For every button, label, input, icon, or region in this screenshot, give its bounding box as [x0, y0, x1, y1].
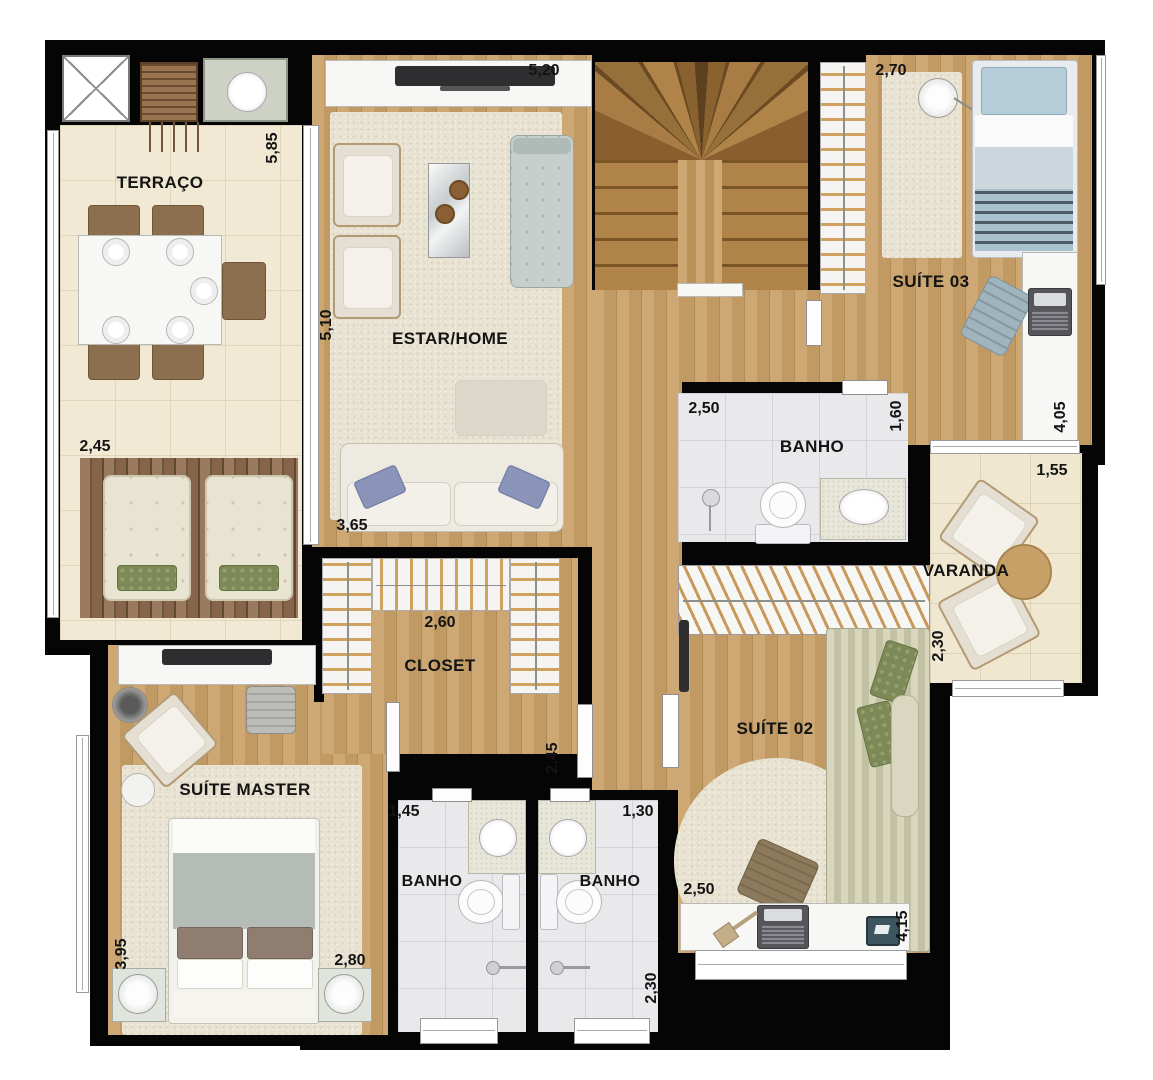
dim-suite02-250: 2,50	[683, 881, 714, 899]
single-bed	[972, 60, 1078, 258]
suite02-door	[662, 694, 679, 768]
elevator-shaft	[62, 55, 130, 122]
terrace-left-window	[47, 130, 59, 618]
room-label-banho-social: BANHO	[780, 437, 844, 457]
dim-closet-245: 2,45	[544, 742, 562, 773]
laptop	[1028, 288, 1072, 336]
suite02-laptop	[757, 905, 809, 949]
banho-master-counter	[468, 800, 526, 874]
plate-setting	[166, 316, 194, 344]
closet-door	[577, 704, 593, 778]
dim-suite03-270: 2,70	[875, 62, 906, 80]
varanda-bottom-window	[952, 680, 1064, 697]
floor-lamp	[918, 78, 958, 118]
staircase	[595, 62, 808, 290]
floor-plan: TERRAÇO 5,85 2,45 ESTAR/HOME 5,20 5,10 3…	[0, 0, 1153, 1080]
room-label-estar: ESTAR/HOME	[392, 329, 508, 349]
dim-closet-260: 2,60	[424, 614, 455, 632]
suite02-wall-tv	[679, 620, 689, 692]
room-label-banho-suite02: BANHO	[580, 873, 641, 891]
room-label-varanda: VARANDA	[923, 561, 1010, 581]
banho-master-window	[420, 1018, 498, 1044]
chaise-daybed	[510, 135, 574, 288]
bookshelf	[820, 62, 866, 294]
grill-skewers	[141, 122, 199, 152]
shower-head	[702, 489, 720, 507]
room-label-banho-master: BANHO	[402, 873, 463, 891]
plate-setting	[102, 316, 130, 344]
room-label-suite02: SUÍTE 02	[737, 719, 814, 739]
room-label-suite03: SUÍTE 03	[893, 272, 970, 292]
dim-terraco-585: 5,85	[264, 132, 282, 163]
master-side-table	[121, 773, 155, 807]
terrace-estar-glass-door	[303, 125, 319, 545]
hall-suite03-door	[806, 300, 822, 346]
stair-treads-right	[722, 160, 808, 290]
nightstand	[318, 968, 372, 1022]
master-door	[386, 702, 400, 772]
nightstand	[112, 968, 166, 1022]
stair-landing-strip	[678, 160, 722, 290]
room-label-terraco: TERRAÇO	[117, 173, 204, 193]
banho-social-counter	[820, 478, 906, 540]
plate-setting	[166, 238, 194, 266]
closet-top-shelf	[372, 558, 510, 611]
banho-social-door	[842, 380, 888, 395]
armchair	[333, 235, 401, 319]
banho-master-door	[432, 788, 472, 802]
dim-master-280: 2,80	[334, 952, 365, 970]
room-label-suite-master: SUÍTE MASTER	[179, 780, 310, 800]
dim-banho-social-160: 1,60	[888, 400, 906, 431]
terrace-sink-counter	[203, 58, 288, 122]
dining-chair	[222, 262, 266, 320]
dim-banho-social-250: 2,50	[688, 400, 719, 418]
master-tv	[162, 649, 272, 665]
suite02-bottom-window	[695, 950, 907, 980]
tv-stand	[440, 86, 510, 91]
plate-setting	[102, 238, 130, 266]
toilet-tank	[502, 874, 520, 930]
stair-base-step	[677, 283, 743, 297]
sun-lounger	[205, 475, 293, 601]
dim-banho-suite02-230: 2,30	[643, 972, 661, 1003]
banho-suite02-window	[574, 1018, 650, 1044]
dim-estar-365: 3,65	[336, 517, 367, 535]
room-label-closet: CLOSET	[404, 656, 475, 676]
sun-lounger	[103, 475, 191, 601]
armchair	[333, 143, 401, 227]
dim-banho-suite02-130: 1,30	[622, 803, 653, 821]
barbecue-grill-icon	[140, 62, 198, 122]
dim-master-395: 3,95	[113, 938, 131, 969]
master-desk-chair	[246, 686, 296, 734]
banho-suite02-counter	[538, 800, 596, 874]
dim-estar-510: 5,10	[318, 309, 336, 340]
double-bed	[168, 818, 320, 1024]
shower-knob	[486, 961, 500, 975]
dim-suite02-415: 4,15	[894, 910, 912, 941]
dim-banho-master-145: 1,45	[388, 803, 419, 821]
ottoman	[455, 380, 547, 436]
sofa	[340, 443, 564, 532]
dim-varanda-230: 2,30	[930, 630, 948, 661]
stair-treads-left	[595, 160, 678, 290]
suite02-wardrobe	[678, 565, 930, 635]
suite03-varanda-window	[930, 440, 1080, 454]
plate-setting	[190, 277, 218, 305]
suite03-right-window	[1096, 55, 1106, 285]
dim-varanda-155: 1,55	[1036, 462, 1067, 480]
stair-winder-treads	[595, 62, 808, 160]
dim-estar-520: 5,20	[528, 62, 559, 80]
dim-suite03-405: 4,05	[1052, 401, 1070, 432]
closet-wing-left	[322, 558, 372, 694]
closet-wing-right	[510, 558, 560, 694]
mirror-coffee-table	[428, 163, 470, 258]
banho-suite02-door	[550, 788, 590, 802]
shower-knob	[550, 961, 564, 975]
toilet	[760, 482, 806, 528]
toilet	[458, 880, 504, 924]
shower-hose	[709, 505, 711, 531]
dim-terraco-245: 2,45	[79, 438, 110, 456]
master-left-window	[76, 735, 89, 993]
